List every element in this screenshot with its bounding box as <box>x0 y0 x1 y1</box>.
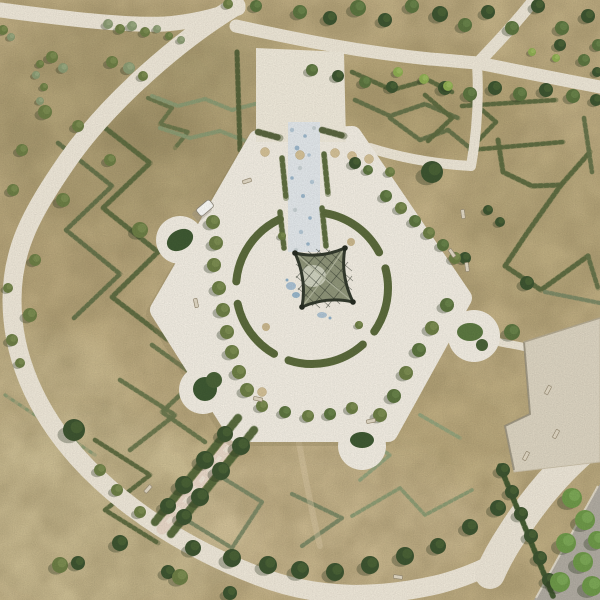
satellite-map-view[interactable] <box>0 0 600 600</box>
photo-grain <box>0 0 600 600</box>
aerial-park-scene <box>0 0 600 600</box>
